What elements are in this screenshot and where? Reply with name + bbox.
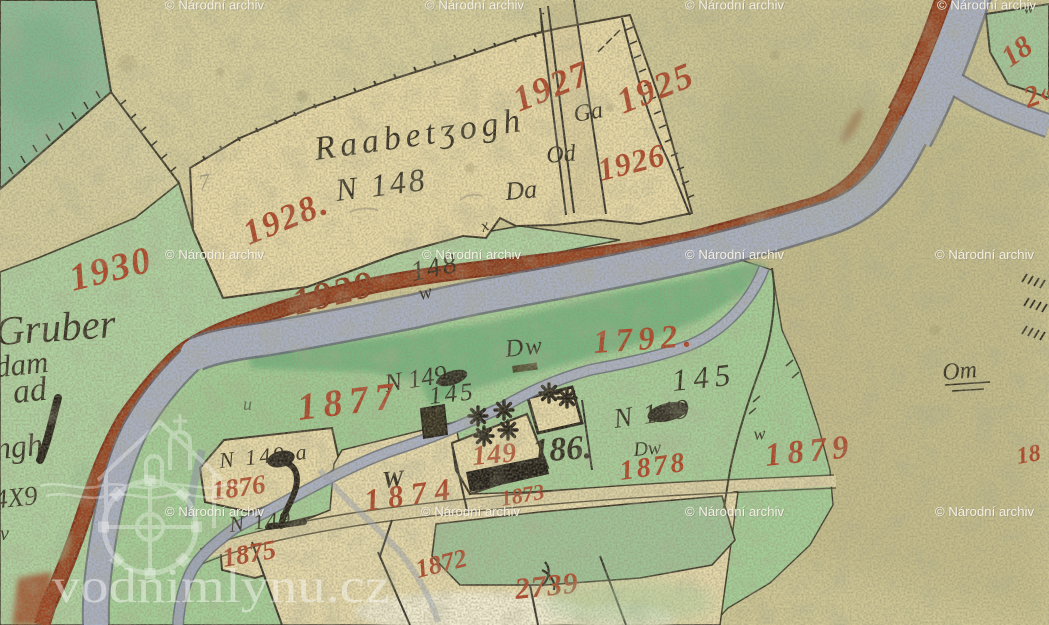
svg-text:vodnimlynu.cz: vodnimlynu.cz bbox=[52, 558, 390, 613]
